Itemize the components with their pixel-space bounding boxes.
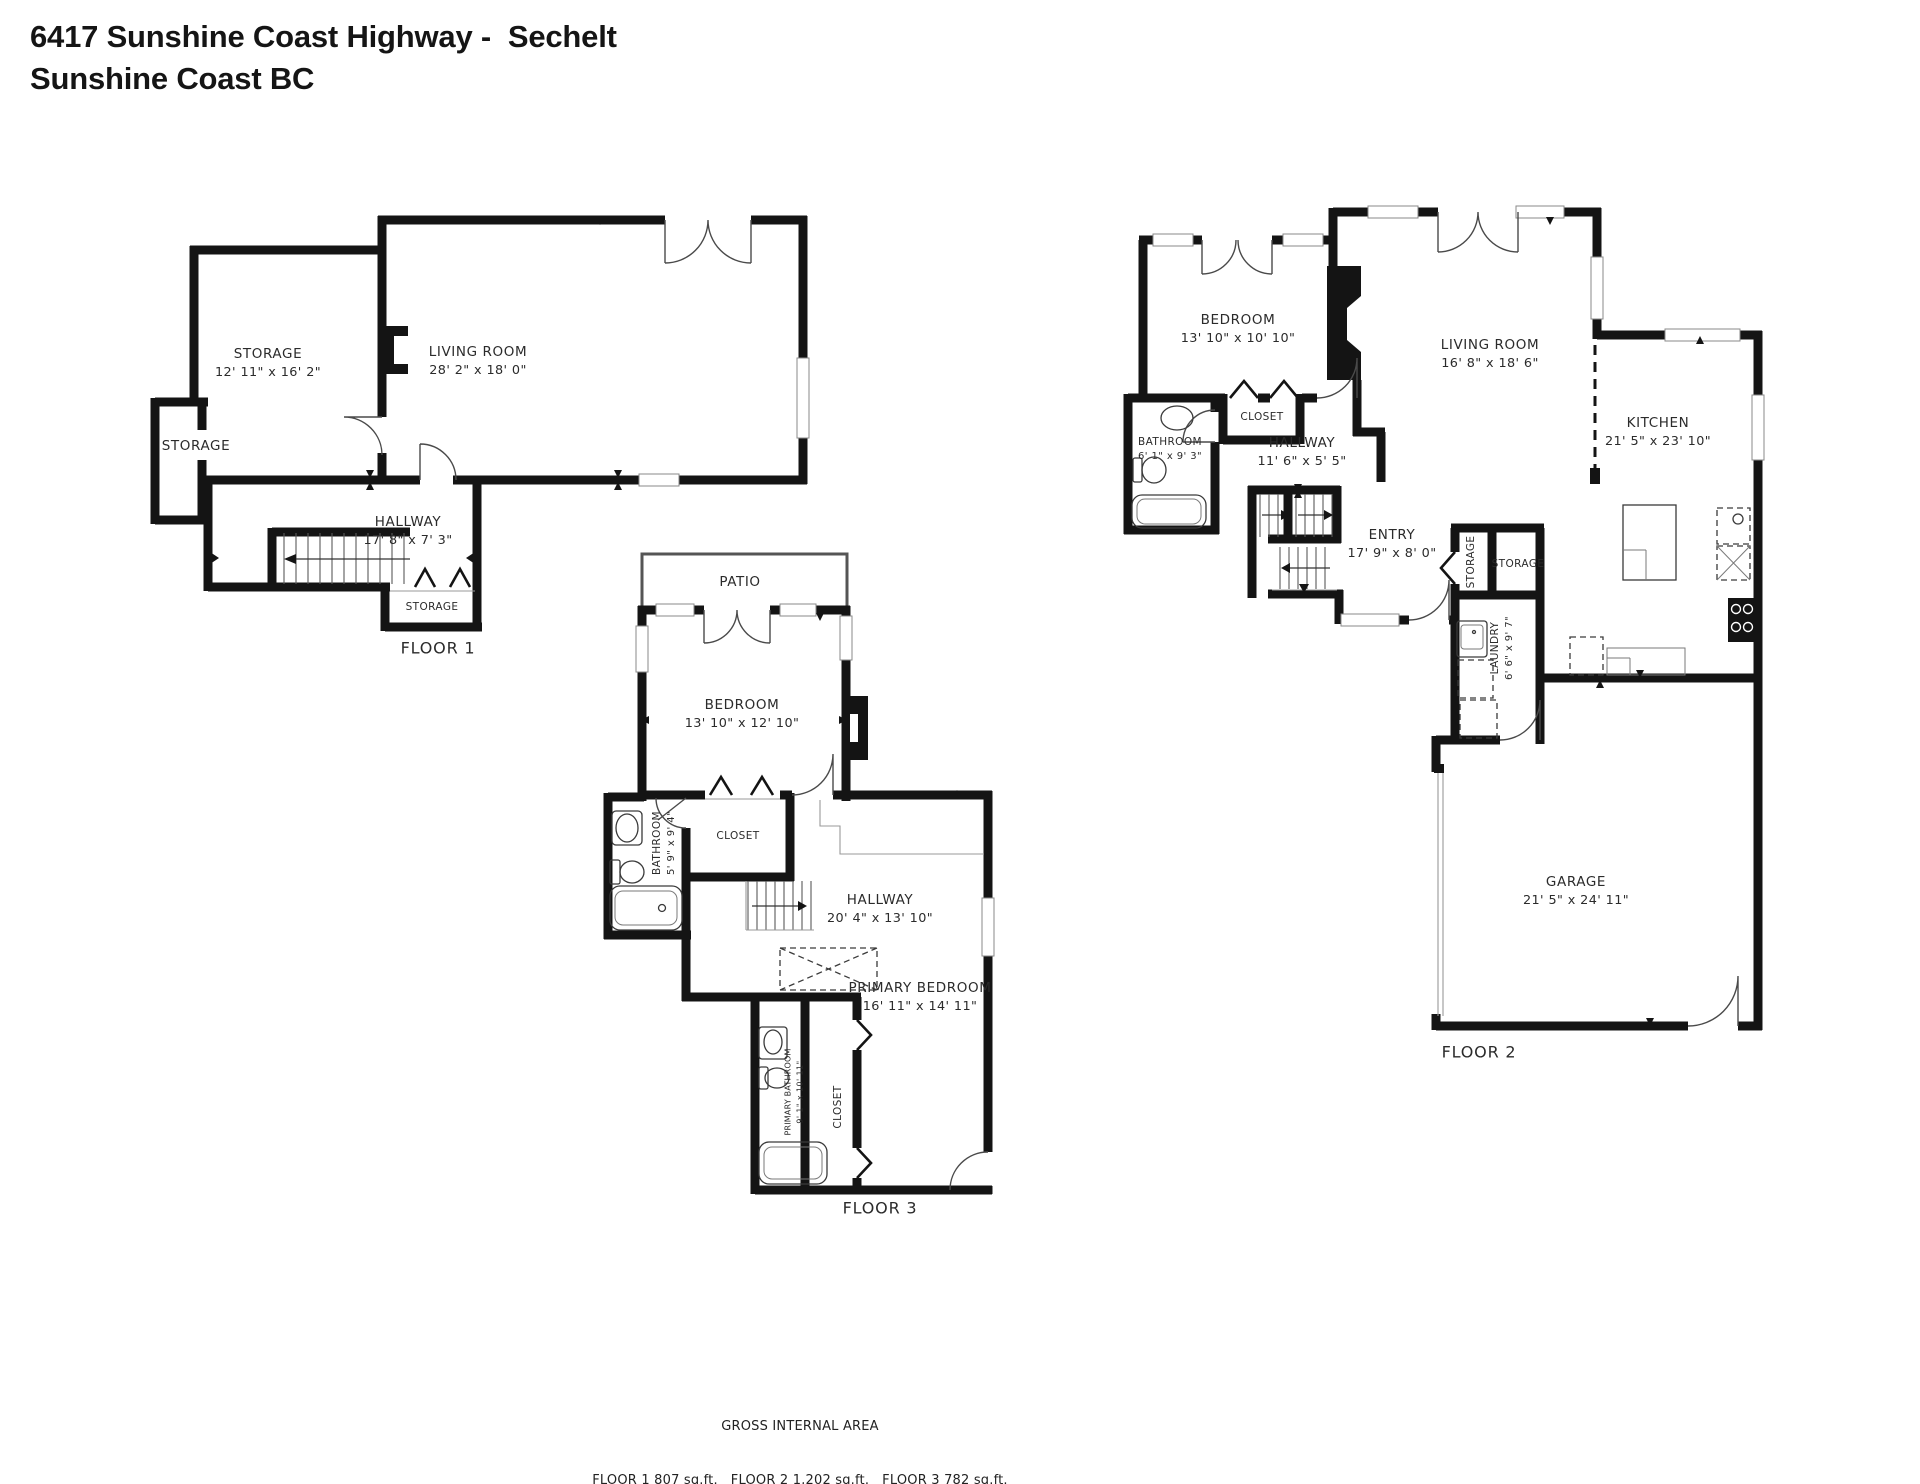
floor2-fixtures — [1132, 406, 1760, 1016]
storage-door-mark — [1441, 552, 1455, 584]
counter — [1607, 648, 1685, 675]
room-storage-b: STORAGE — [1492, 558, 1545, 570]
floor2-caption: FLOOR 2 — [1442, 1043, 1517, 1062]
dryer — [1460, 700, 1497, 738]
room-bedroom: BEDROOM13' 10" x 10' 10" — [1181, 312, 1296, 346]
room-storage-bottom: STORAGE — [406, 601, 459, 613]
entry-door — [1409, 580, 1449, 620]
living-french-doors — [1438, 212, 1518, 252]
door-hallway — [420, 444, 456, 480]
window — [1516, 206, 1564, 218]
room-laundry: LAUNDRY6' 6" x 9' 7" — [1489, 616, 1515, 680]
page-title: 6417 Sunshine Coast Highway - SecheltSun… — [30, 16, 617, 100]
floor2-drawing — [900, 160, 1780, 1080]
room-closet2: CLOSET — [832, 1085, 844, 1128]
bathtub — [610, 886, 682, 930]
room-closet: CLOSET — [1240, 411, 1283, 423]
closet-door-marks — [710, 777, 773, 795]
floorplan-page: 6417 Sunshine Coast Highway - SecheltSun… — [0, 0, 1920, 1484]
room-living: LIVING ROOM16' 8" x 18' 6" — [1441, 337, 1539, 371]
room-primary-bathroom: PRIMARY BATHROOM9' 1" x 10' 11" — [784, 1048, 805, 1135]
floor2-kitchen-divider — [1590, 345, 1600, 484]
window — [1368, 206, 1418, 218]
french-doors — [665, 220, 751, 263]
door-bedroom — [792, 754, 833, 795]
window — [797, 358, 809, 438]
patio-doors — [704, 610, 770, 643]
room-storage-main: STORAGE12' 11" x 16' 2" — [215, 346, 321, 380]
window — [636, 626, 648, 672]
room-storage-small: STORAGE — [162, 438, 230, 454]
window — [1153, 234, 1193, 246]
laundry-door — [1500, 700, 1540, 740]
window — [1591, 257, 1603, 319]
floor3-stairs — [746, 881, 814, 930]
area-summary: GROSS INTERNAL AREA FLOOR 1 807 sq.ft. F… — [592, 1381, 1008, 1484]
title-line2: Sunshine Coast BC — [30, 61, 314, 96]
garage-door — [1688, 976, 1738, 1026]
room-bathroom: BATHROOM6' 1" x 9' 3" — [1138, 436, 1202, 462]
window — [840, 616, 852, 660]
closet-door-marks — [415, 569, 470, 587]
window — [1752, 395, 1764, 460]
stove — [1728, 598, 1760, 642]
garage-opening — [1438, 772, 1443, 1016]
floor1-caption: FLOOR 1 — [401, 639, 476, 658]
door-storage — [344, 417, 382, 455]
door-primary — [950, 1152, 988, 1190]
title-line1: 6417 Sunshine Coast Highway - Sechelt — [30, 19, 617, 54]
fridge — [1717, 508, 1750, 544]
room-hallway: HALLWAY11' 6" x 5' 5" — [1258, 435, 1347, 469]
primary-bathtub — [759, 1142, 827, 1184]
washer — [1458, 660, 1493, 698]
stair-arrow — [284, 554, 296, 564]
kitchen-island — [1623, 505, 1676, 580]
room-bedroom: BEDROOM13' 10" x 12' 10" — [685, 697, 800, 731]
summary-heading: GROSS INTERNAL AREA — [592, 1419, 1008, 1435]
window — [780, 604, 816, 616]
room-garage: GARAGE21' 5" x 24' 11" — [1523, 874, 1629, 908]
bedroom-doors — [1202, 240, 1272, 274]
room-living: LIVING ROOM28' 2" x 18' 0" — [429, 344, 527, 378]
room-entry: ENTRY17' 9" x 8' 0" — [1348, 527, 1437, 561]
room-storage-a: STORAGE — [1465, 536, 1477, 589]
window — [1341, 614, 1399, 626]
floor3-caption: FLOOR 3 — [843, 1199, 918, 1218]
floor2-plan: BEDROOM13' 10" x 10' 10" BATHROOM6' 1" x… — [900, 160, 1780, 1080]
sink — [1161, 406, 1193, 430]
room-closet: CLOSET — [716, 830, 759, 842]
room-patio: PATIO — [719, 574, 760, 590]
window — [1283, 234, 1323, 246]
summary-floors: FLOOR 1 807 sq.ft. FLOOR 2 1,202 sq.ft. … — [592, 1473, 1008, 1484]
window — [1665, 329, 1740, 341]
window — [656, 604, 694, 616]
primary-toilet — [759, 1067, 768, 1089]
room-hallway: HALLWAY17' 8" x 7' 3" — [364, 514, 453, 548]
dishwasher — [1570, 637, 1603, 675]
bathtub — [1132, 495, 1206, 528]
room-kitchen: KITCHEN21' 5" x 23' 10" — [1605, 415, 1711, 449]
room-bathroom: BATHROOM5' 9" x 9' 4" — [651, 811, 677, 875]
